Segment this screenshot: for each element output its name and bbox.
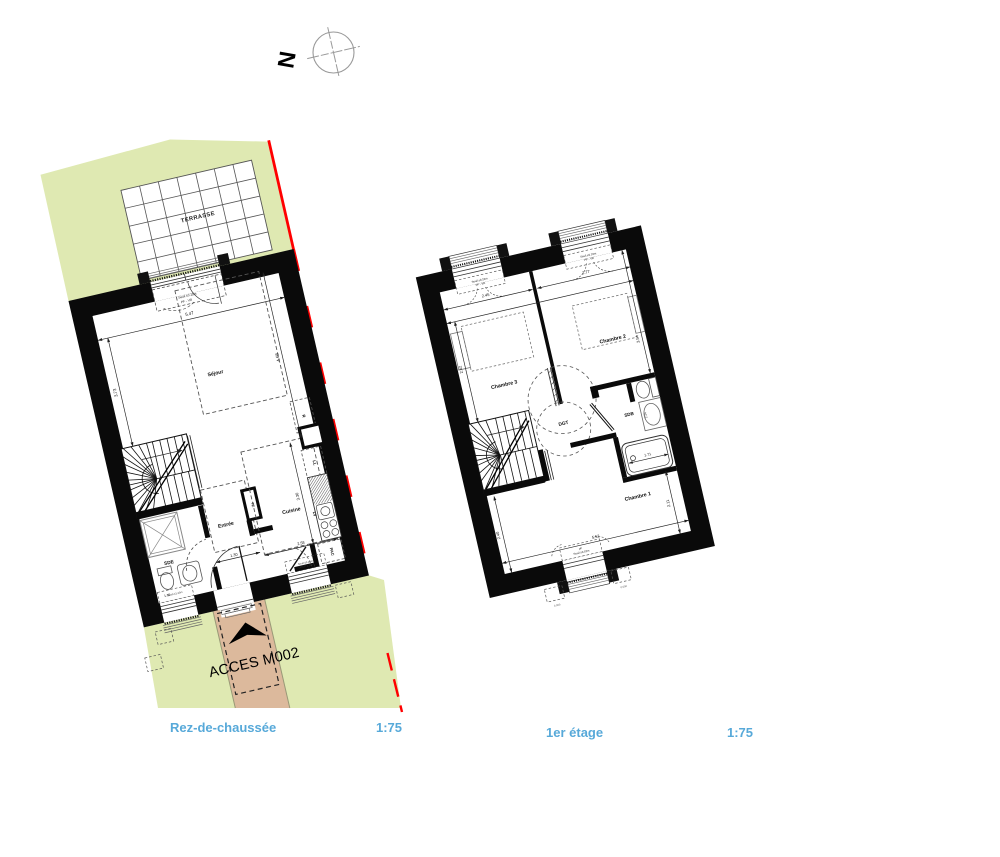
svg-text:1:75: 1:75 [376, 720, 402, 735]
svg-text:Rez-de-chaussée: Rez-de-chaussée [170, 720, 276, 735]
svg-text:1:75: 1:75 [727, 725, 753, 740]
svg-text:1er étage: 1er étage [546, 725, 603, 740]
